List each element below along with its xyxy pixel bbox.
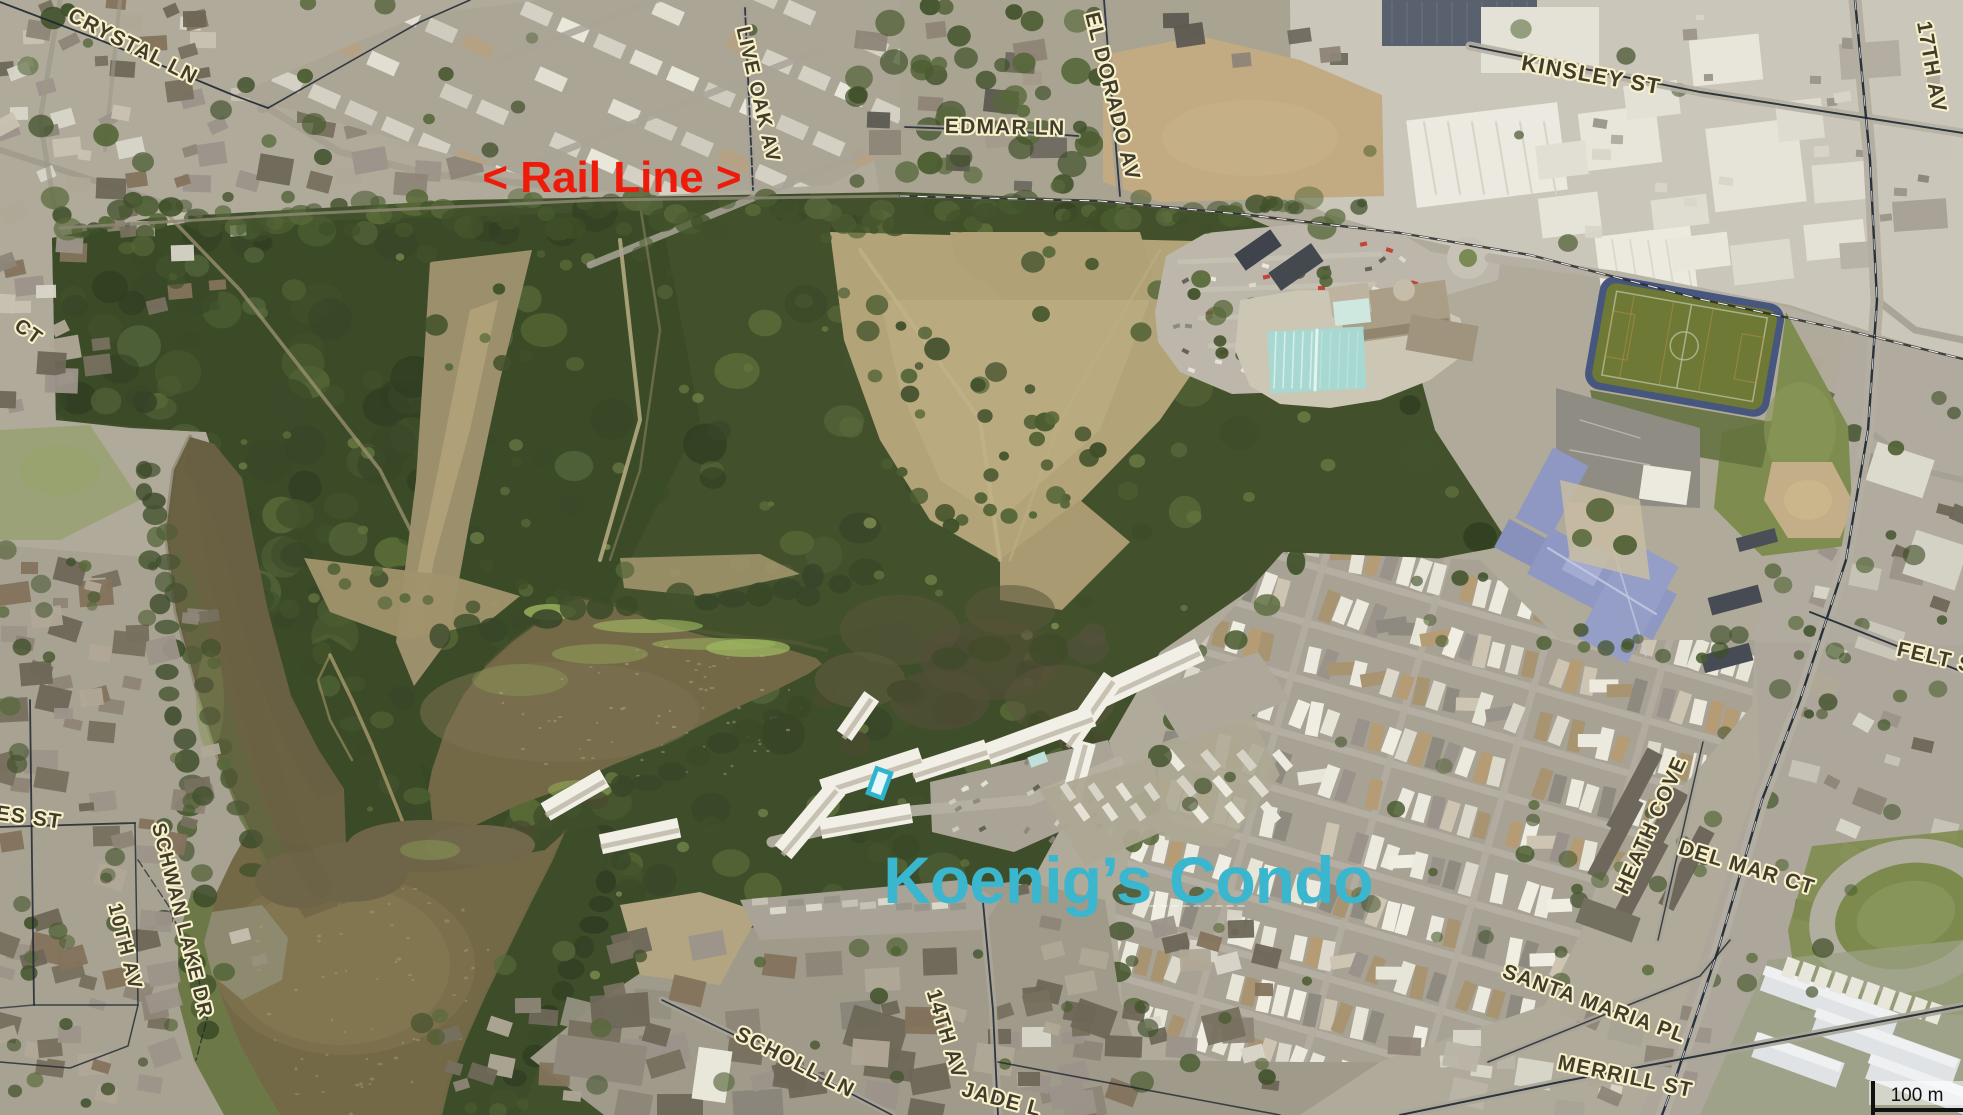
svg-text:100 m: 100 m	[1891, 1085, 1944, 1106]
svg-text:Koenig’s Condo: Koenig’s Condo	[883, 843, 1373, 917]
svg-text:EDMAR LN: EDMAR LN	[945, 115, 1066, 140]
svg-text:< Rail Line >: < Rail Line >	[482, 153, 741, 202]
